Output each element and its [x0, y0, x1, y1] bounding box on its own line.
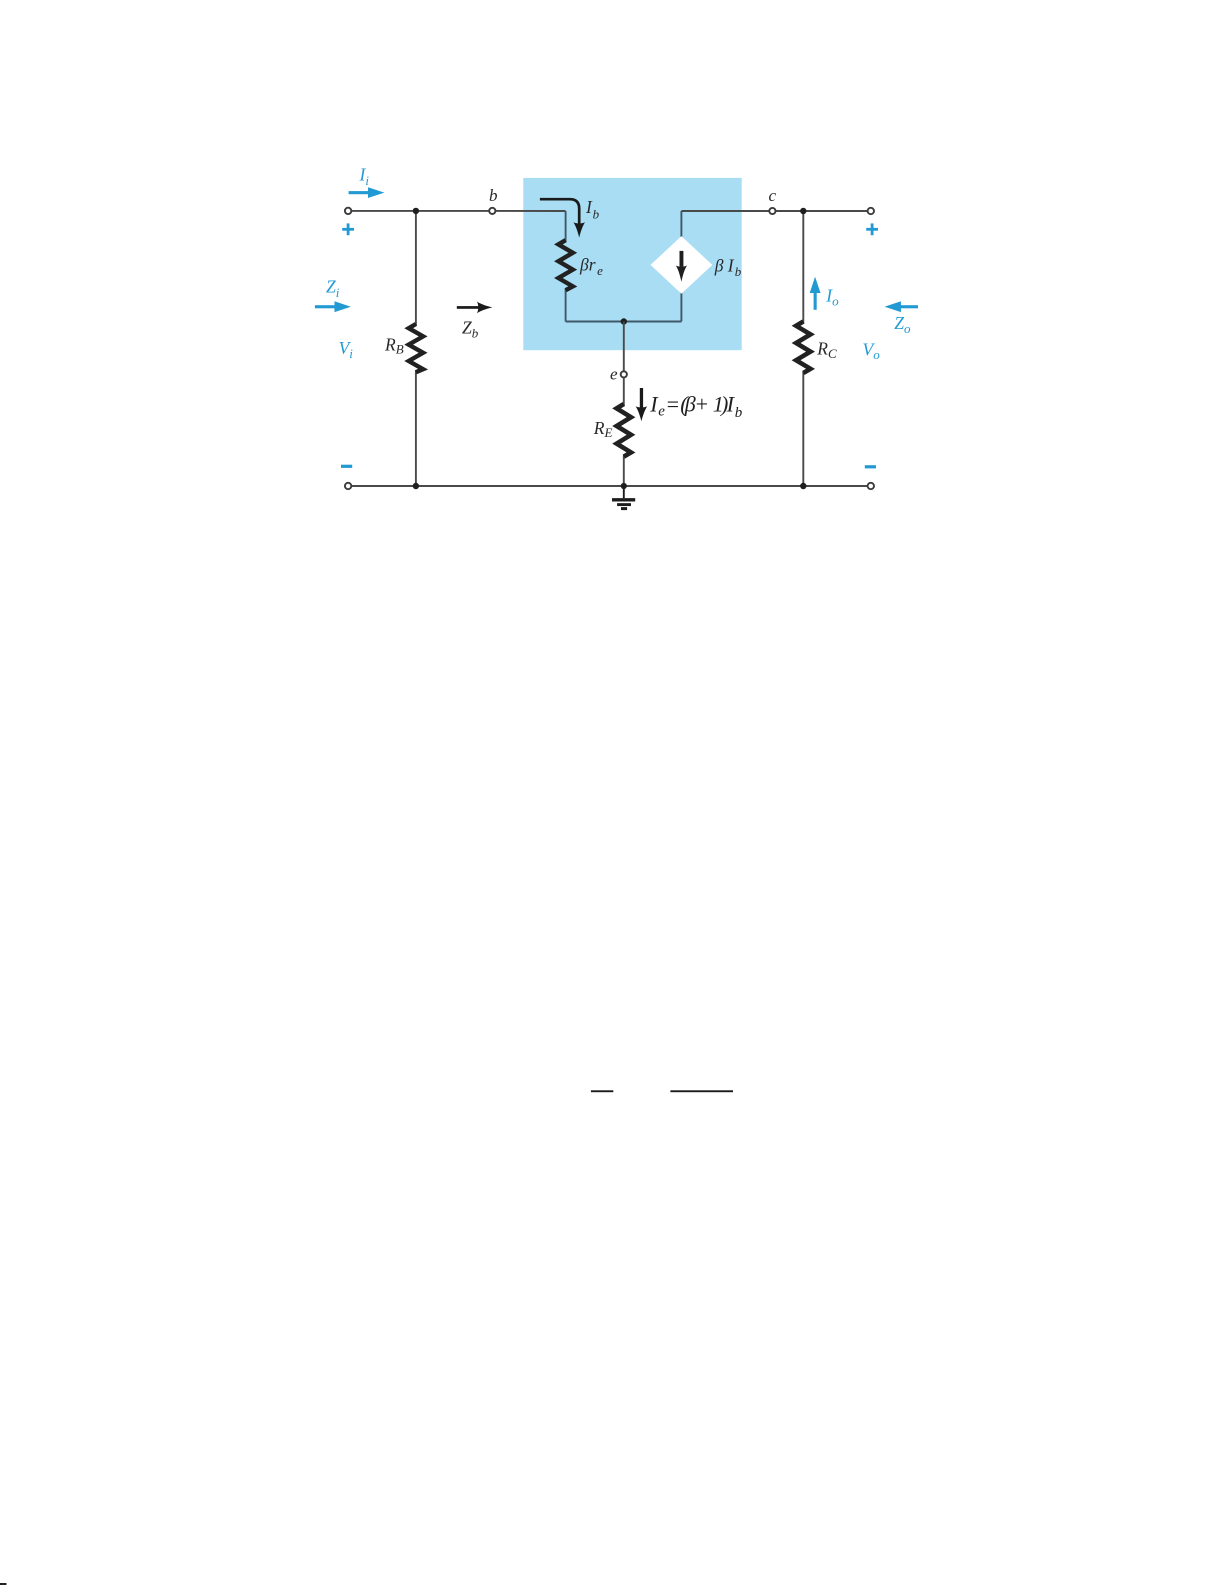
svg-text:e: e	[658, 404, 665, 420]
svg-text:c: c	[769, 186, 777, 205]
svg-text:RE: RE	[593, 418, 613, 440]
svg-text:Zo: Zo	[894, 313, 911, 336]
svg-text:RC: RC	[816, 339, 837, 361]
svg-text:Vo: Vo	[863, 339, 881, 362]
svg-text:Zi: Zi	[326, 277, 340, 300]
svg-text:Zb: Zb	[462, 317, 479, 340]
svg-text:Vi: Vi	[339, 338, 354, 361]
svg-text:b: b	[489, 186, 498, 205]
svg-text:RB: RB	[384, 334, 404, 356]
svg-text:Io: Io	[825, 285, 839, 308]
svg-text:e: e	[610, 365, 618, 384]
svg-text:b: b	[735, 405, 743, 421]
svg-text:=: =	[665, 391, 680, 416]
svg-text:Ii: Ii	[359, 164, 370, 188]
svg-text:+: +	[694, 391, 709, 416]
